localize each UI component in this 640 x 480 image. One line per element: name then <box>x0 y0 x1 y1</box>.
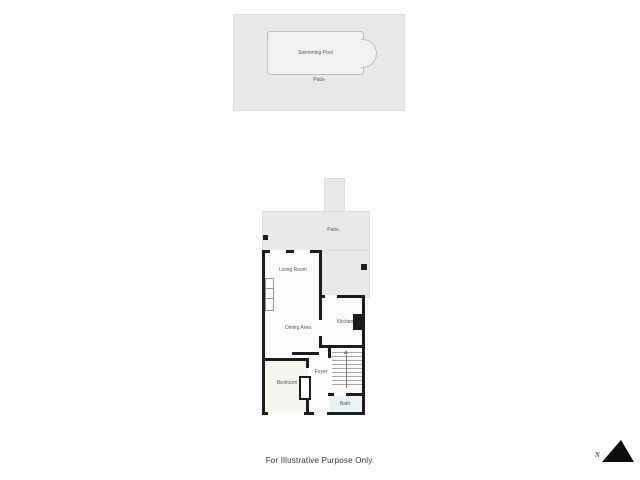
wall-house-left <box>262 250 265 415</box>
builtin-shelf-2 <box>266 289 273 299</box>
stair-tread <box>332 376 362 377</box>
swimming-pool-shape: Swimming Pool <box>267 31 364 75</box>
wall-bedroom-right-lower <box>306 400 309 414</box>
stair-arrow-head-icon <box>344 350 348 354</box>
living-room-label: Living Room <box>273 267 313 273</box>
foyer-label: Foyer <box>301 369 341 375</box>
swimming-pool-label: Swimming Pool <box>268 50 363 56</box>
stair-tread <box>332 356 362 357</box>
north-arrow: N <box>590 434 640 472</box>
bath-label: Bath <box>325 401 365 407</box>
wall-bedroom-right-upper <box>306 358 309 368</box>
floor-plan: Patio Living Room Dining Area Kitchen Fo… <box>262 178 368 418</box>
bedroom-window <box>268 412 304 415</box>
pool-rounded-end <box>361 39 377 68</box>
pool-patio-label: Patio <box>234 77 404 83</box>
living-window-right <box>294 250 310 253</box>
kitchen-patio-door <box>325 295 337 298</box>
living-window-left <box>270 250 286 253</box>
dining-opening <box>319 320 322 336</box>
patio-label: Patio <box>313 227 353 233</box>
stair-direction-arrow <box>346 355 347 388</box>
bedroom-label: Bedroom <box>267 380 307 386</box>
stair-tread <box>332 380 362 381</box>
floorplan-page: Swimming Pool Patio <box>0 0 640 480</box>
stair-tread <box>332 384 362 385</box>
stair-tread <box>332 360 362 361</box>
wall-bedroom-top <box>262 358 309 361</box>
disclaimer-text: For Illustrative Purpose Only. <box>0 456 640 465</box>
entry-door <box>314 412 327 415</box>
fireplace-builtin <box>265 278 274 311</box>
patio-column-right <box>361 264 367 270</box>
compass-letter: N <box>595 451 600 459</box>
bath-door <box>334 393 346 396</box>
wall-kitchen-bottom <box>319 345 364 348</box>
builtin-shelf-1 <box>266 279 273 289</box>
kitchen-label: Kitchen <box>325 319 365 325</box>
dining-area-label: Dining Area <box>278 325 318 331</box>
wall-dining-bottom <box>292 352 319 355</box>
patio-column-left <box>263 235 268 240</box>
wall-house-right <box>362 295 365 415</box>
walkway-area <box>324 178 345 214</box>
patio-area-right <box>319 250 370 298</box>
wall-stair-stub <box>328 345 331 358</box>
stair-tread <box>332 364 362 365</box>
pool-patio-area: Swimming Pool Patio <box>233 14 405 111</box>
